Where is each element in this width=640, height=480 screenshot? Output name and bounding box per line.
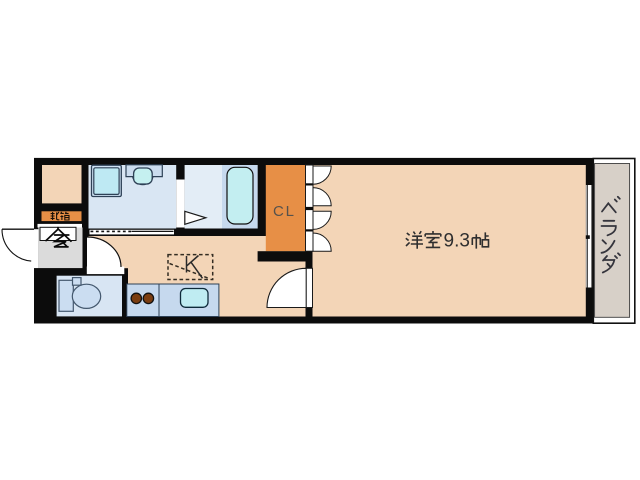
svg-text:9.3: 9.3 <box>444 231 470 252</box>
svg-text:CL: CL <box>273 203 296 220</box>
